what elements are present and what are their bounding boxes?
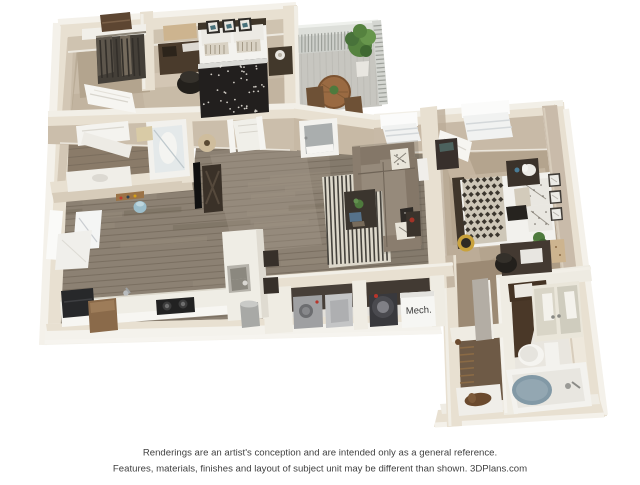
svg-text:Features, materials, finishes: Features, materials, finishes and layout…: [113, 464, 527, 475]
svg-text:Renderings are an artist's con: Renderings are an artist's conception an…: [143, 448, 497, 459]
svg-text:Mech.: Mech.: [406, 305, 432, 317]
